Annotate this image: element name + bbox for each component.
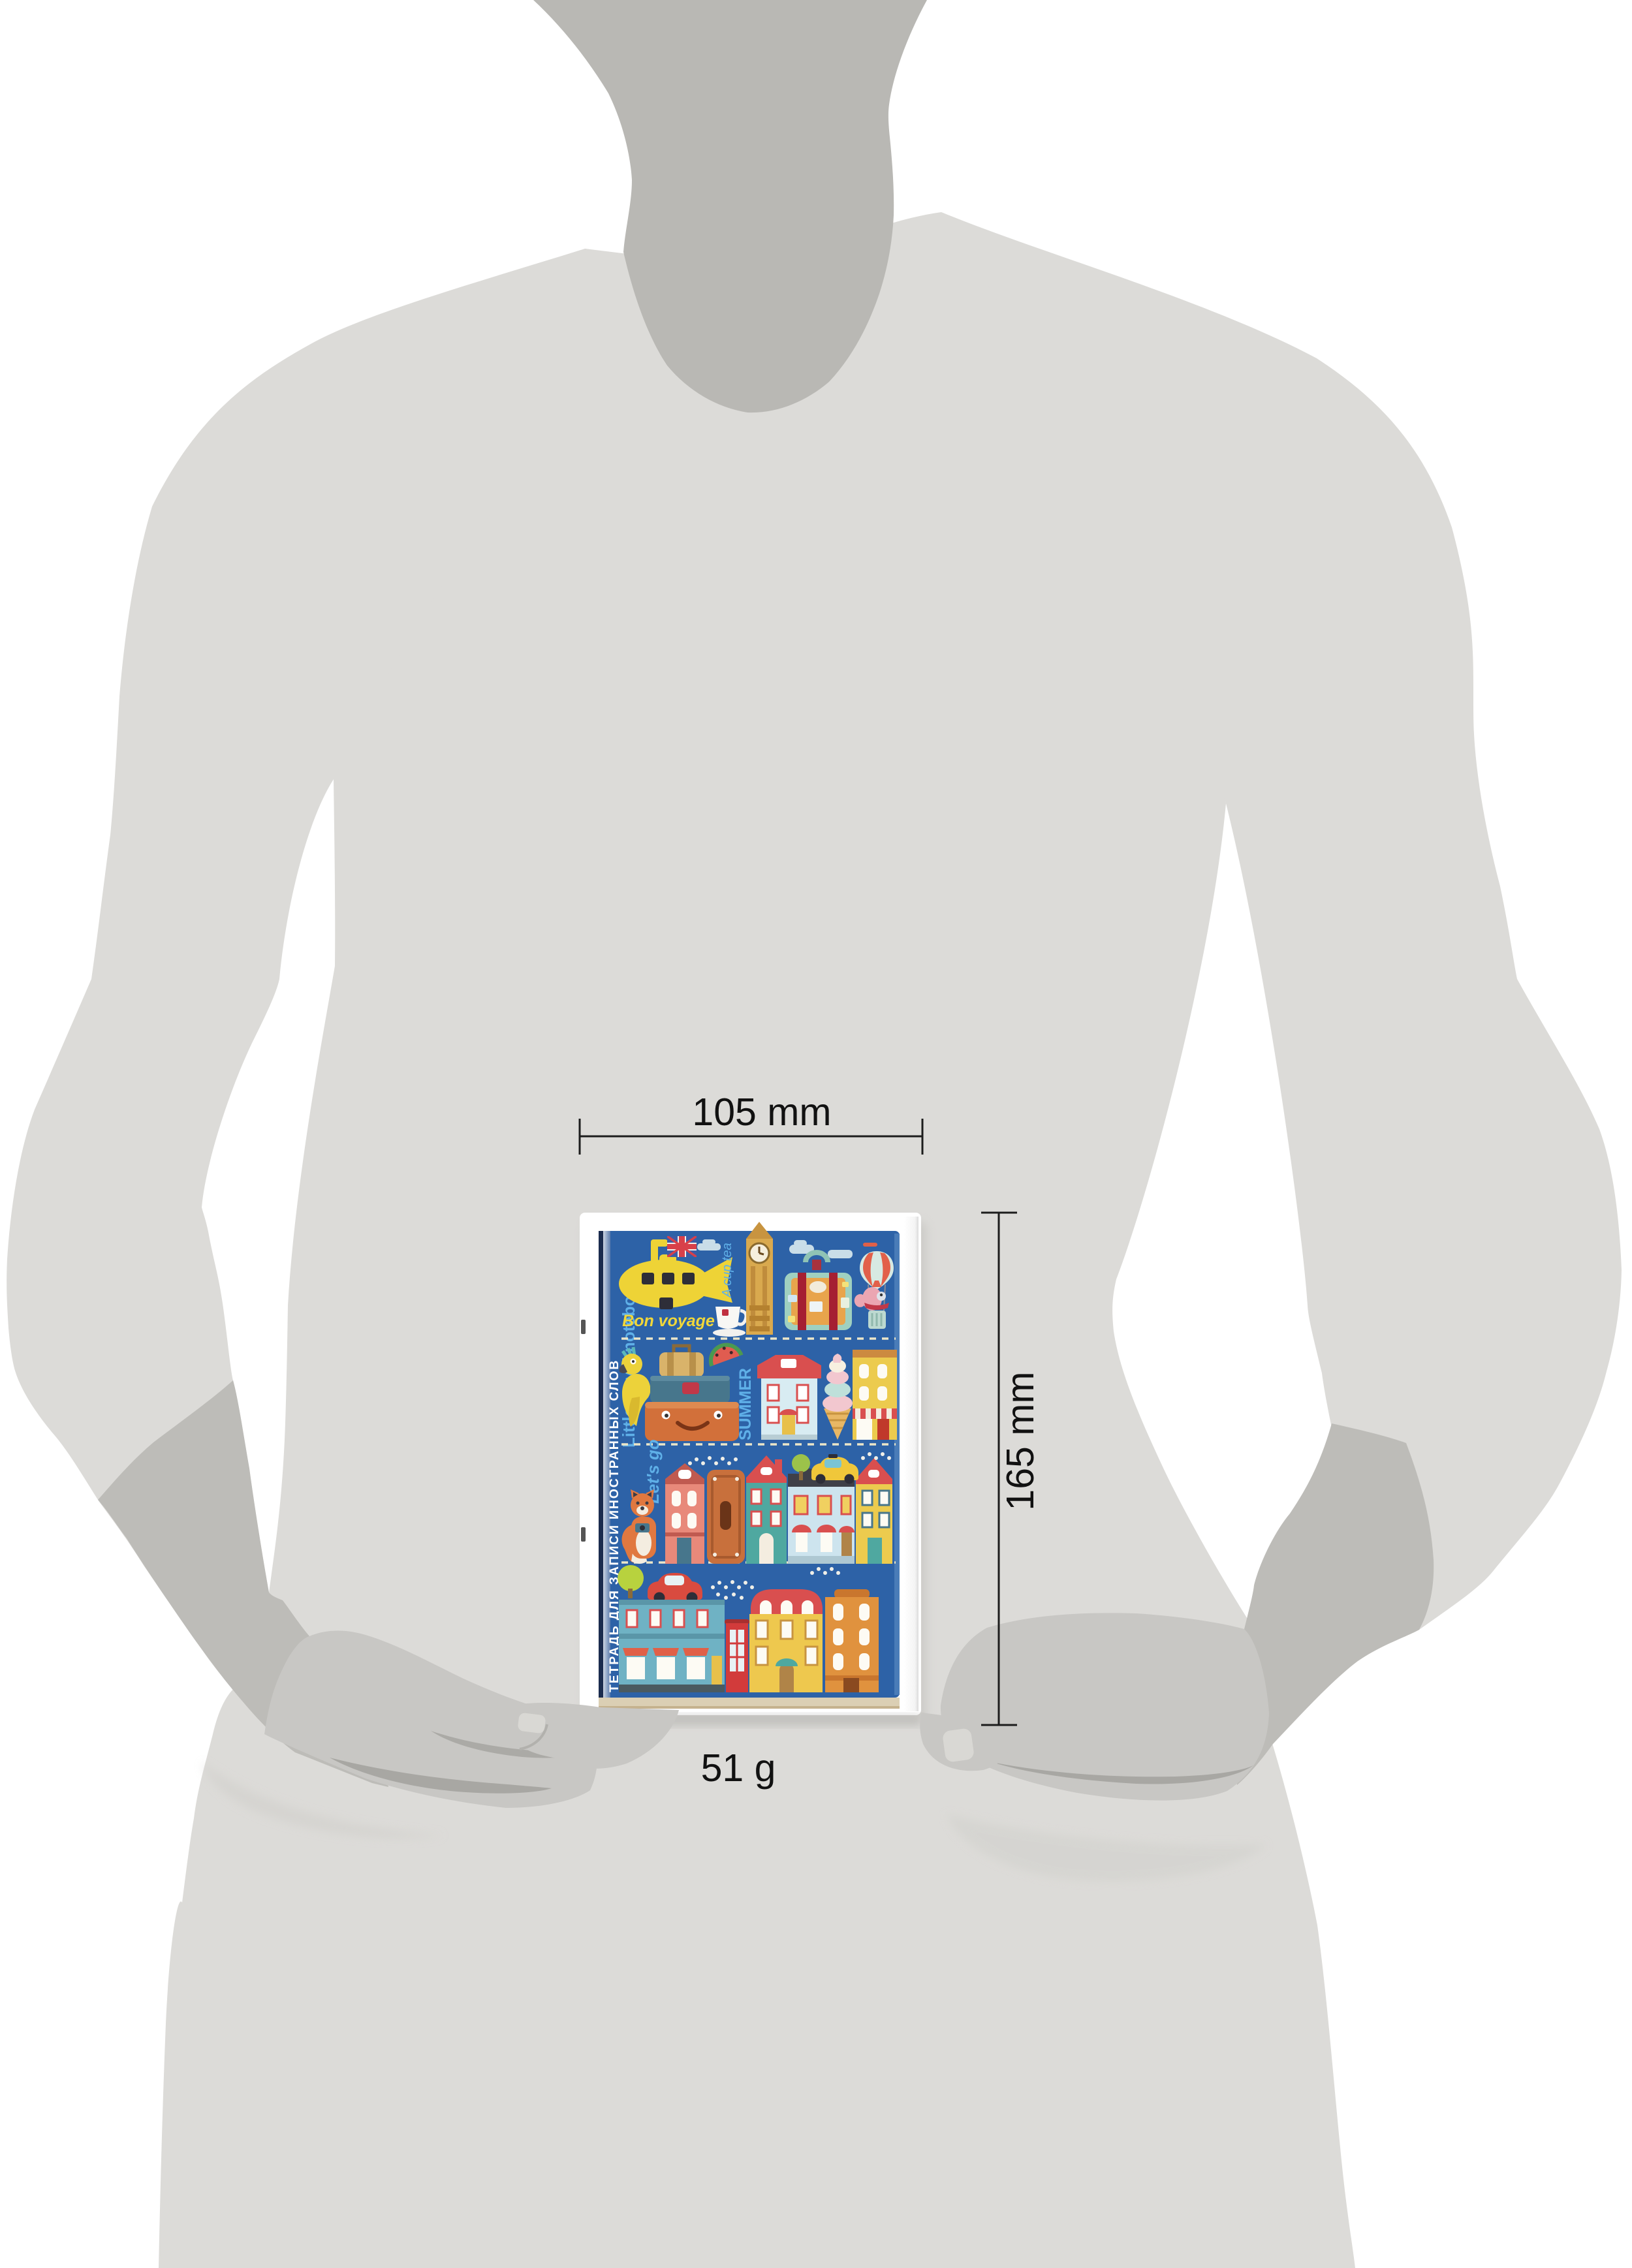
svg-text:165 mm: 165 mm <box>999 1371 1042 1510</box>
svg-text:51 g: 51 g <box>701 1747 776 1790</box>
svg-text:Bon voyage: Bon voyage <box>622 1312 715 1330</box>
svg-text:105 mm: 105 mm <box>692 1091 831 1134</box>
svg-text:A cup tea: A cup tea <box>720 1243 734 1298</box>
svg-text:SUMMER: SUMMER <box>736 1368 755 1440</box>
